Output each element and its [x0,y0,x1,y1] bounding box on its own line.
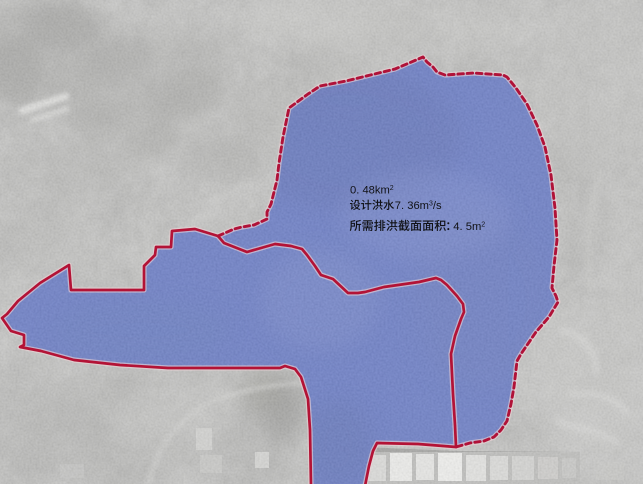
svg-text:0. 48km2: 0. 48km2 [350,185,394,197]
svg-text:7. 36m3/s: 7. 36m3/s [395,200,442,212]
svg-text:4. 5m2: 4. 5m2 [453,221,485,233]
